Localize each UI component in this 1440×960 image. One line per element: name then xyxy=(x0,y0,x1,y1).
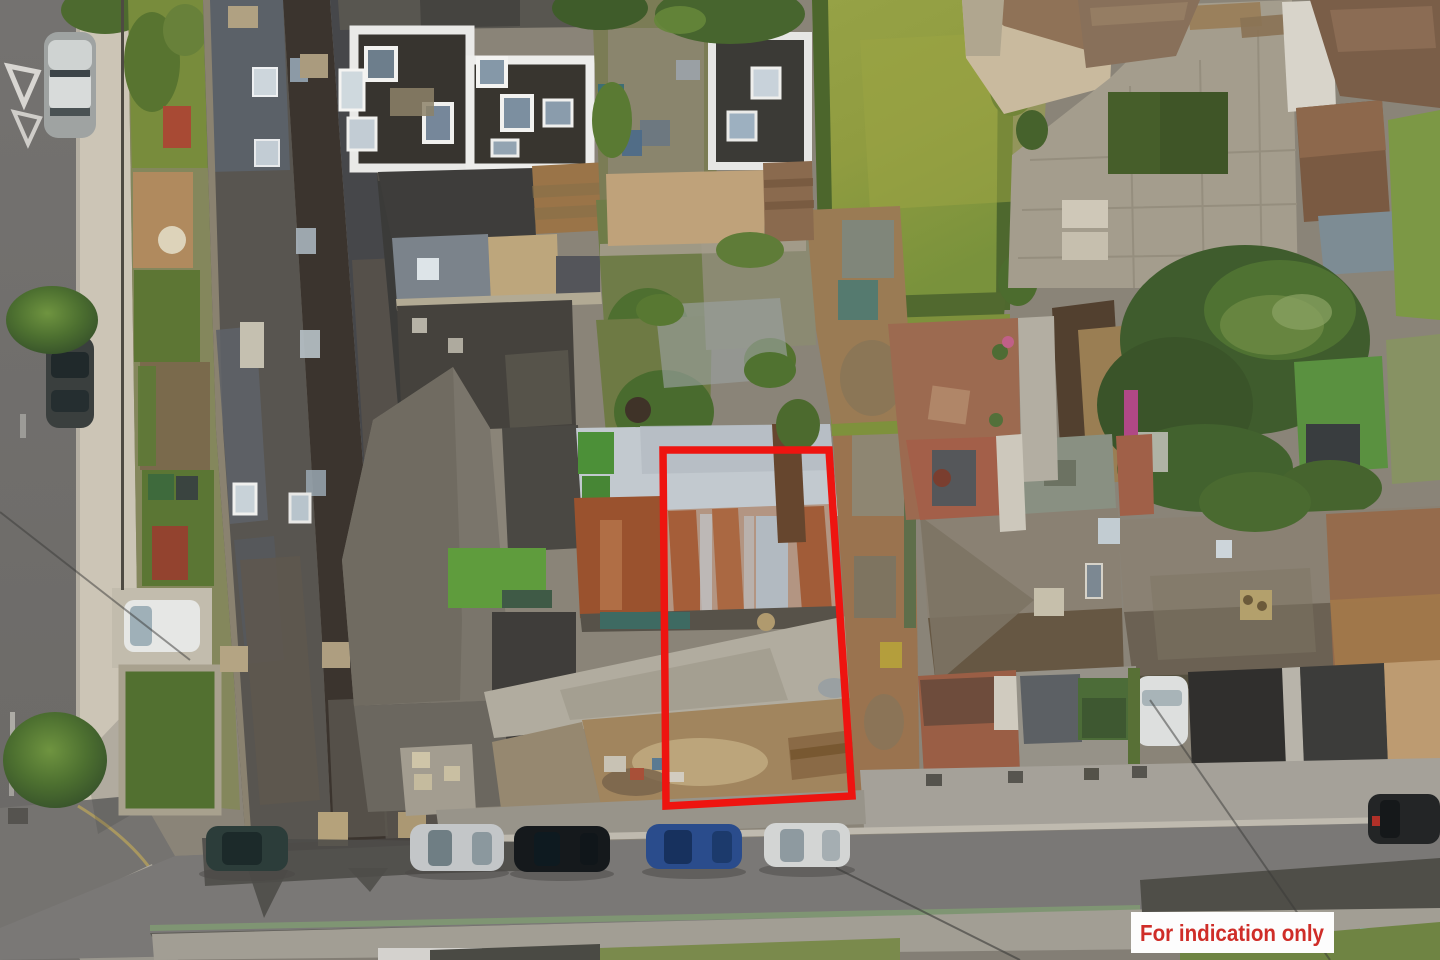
svg-text:For indication only: For indication only xyxy=(1140,920,1324,946)
